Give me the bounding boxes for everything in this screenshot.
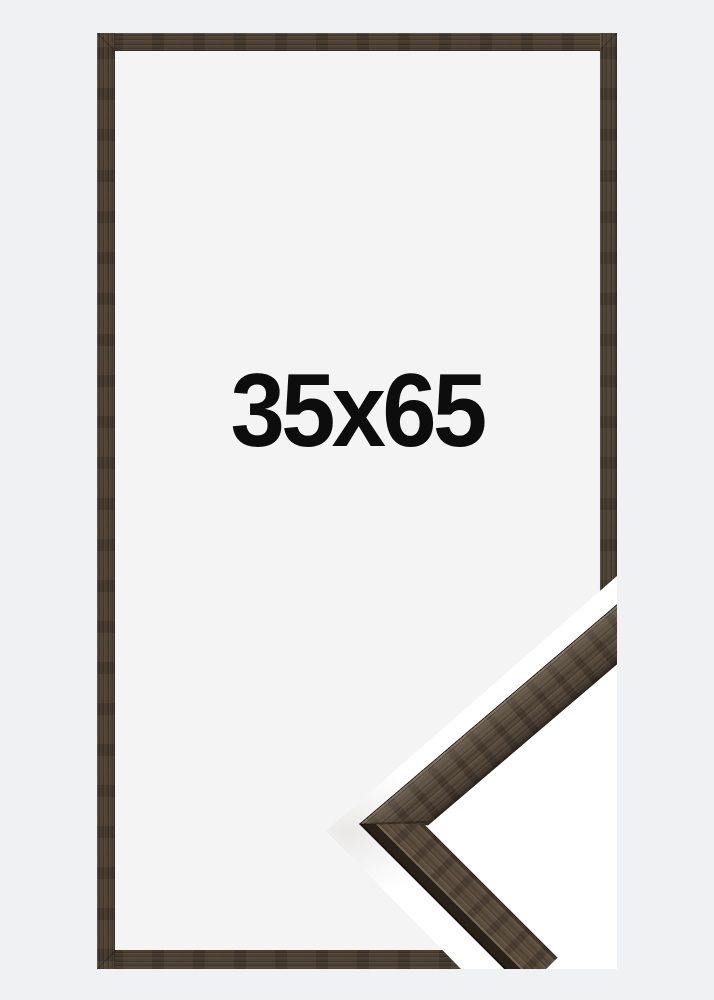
corner-profile-sample xyxy=(97,33,617,969)
corner-sample-upper-arm xyxy=(359,598,617,859)
product-photo: 35x65 xyxy=(0,0,714,1000)
frame-flat-view: 35x65 xyxy=(97,33,617,969)
